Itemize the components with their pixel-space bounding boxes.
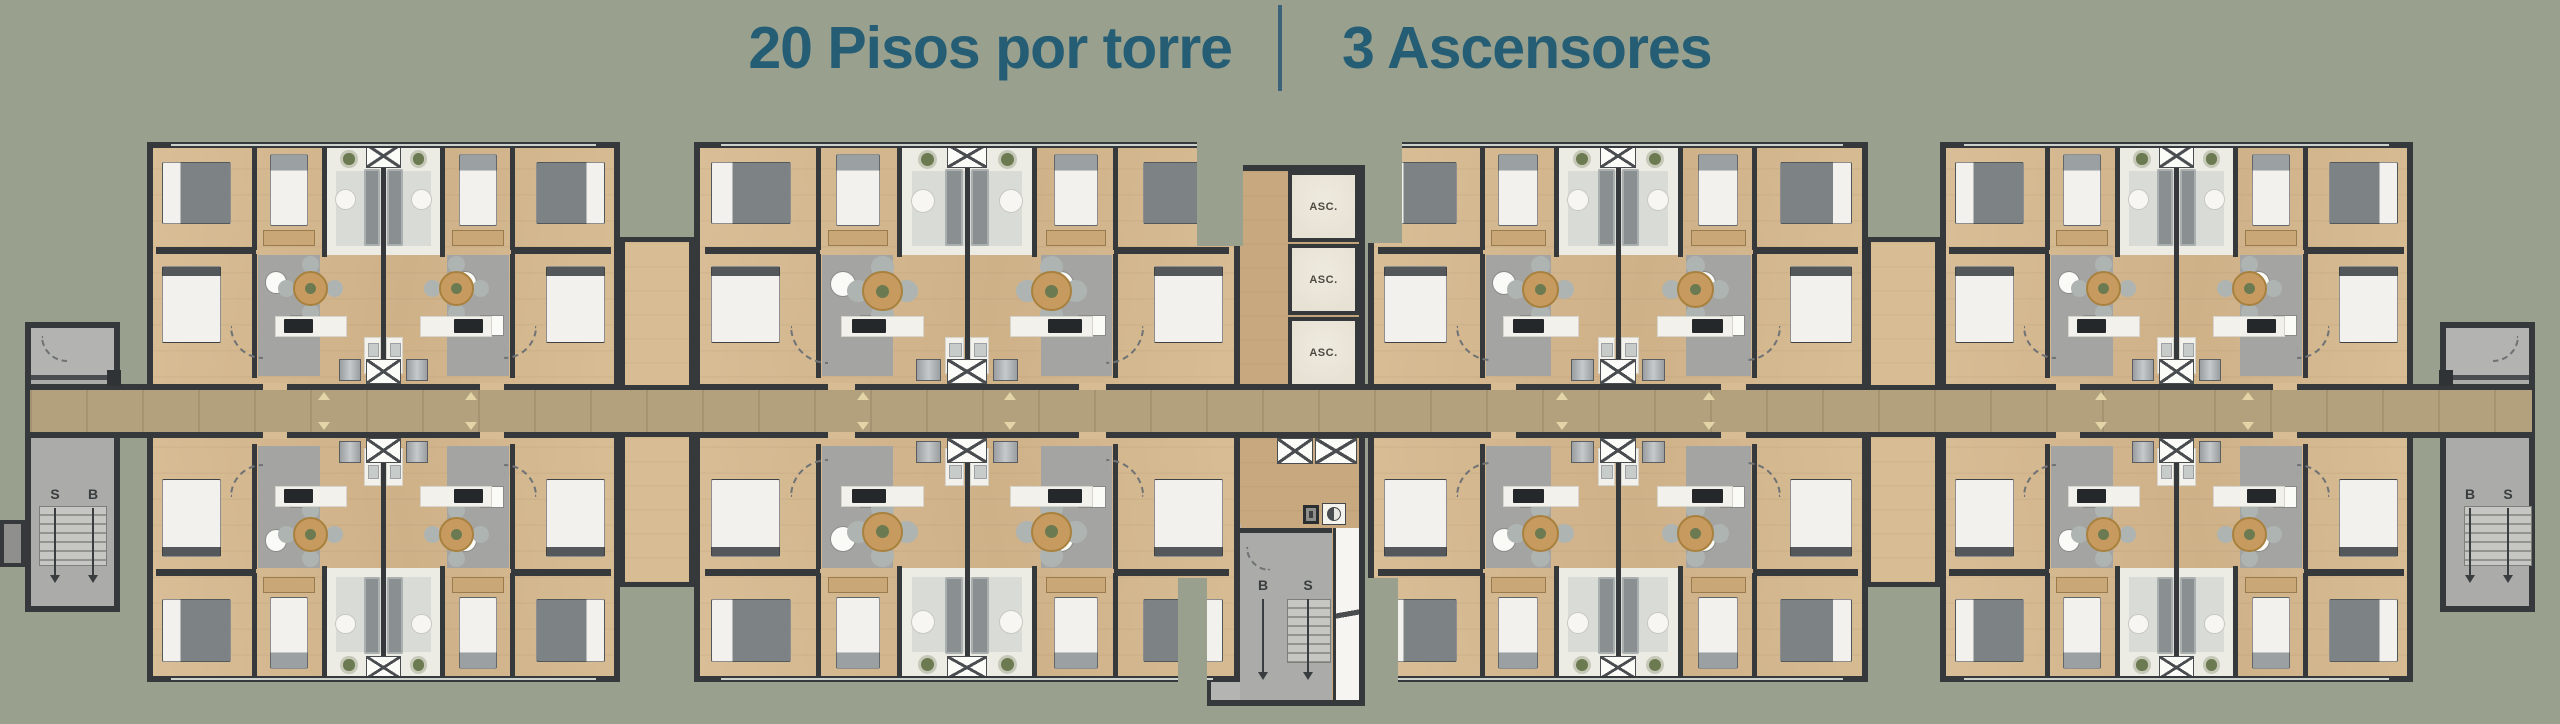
- dining-table: [2086, 517, 2121, 552]
- interior-wall: [1480, 148, 1485, 250]
- door-swing: [1106, 326, 1144, 364]
- door-swing: [2023, 464, 2056, 497]
- down-arrow-icon: [1262, 599, 1264, 673]
- elevator-label: ASC.: [1309, 274, 1337, 286]
- toilet: [1493, 529, 1515, 551]
- corridor-marker-icon: [2242, 392, 2254, 400]
- window-strip: [1393, 144, 1843, 146]
- interior-wall: [1113, 574, 1118, 677]
- plant: [343, 659, 354, 670]
- washer: [1642, 359, 1665, 381]
- plant: [2206, 659, 2217, 670]
- down-arrow-icon: [2469, 508, 2471, 576]
- bed: [711, 162, 790, 224]
- facade-notch: [1197, 136, 1243, 246]
- bed: [536, 600, 605, 663]
- kitchen-counter: [1657, 316, 1733, 337]
- bed: [2339, 480, 2398, 558]
- dining-table: [1677, 515, 1714, 552]
- door-swing: [1456, 462, 1491, 497]
- electrical-box: [1303, 505, 1319, 524]
- cooktop: [2247, 319, 2276, 333]
- kitchen-counter: [275, 486, 347, 507]
- dining-table: [862, 512, 902, 552]
- wardrobe: [1691, 577, 1746, 593]
- bed: [2063, 597, 2101, 670]
- elevator-cell: ASC.: [1288, 317, 1359, 388]
- door-swing: [1106, 459, 1144, 497]
- shaft-box: [947, 438, 986, 463]
- corridor-marker-icon: [465, 392, 477, 400]
- corridor-marker-icon: [1004, 392, 1016, 400]
- bed: [1955, 480, 2014, 558]
- corridor-marker-icon: [1556, 422, 1568, 430]
- interior-wall: [2115, 148, 2120, 257]
- coffee-table: [411, 189, 432, 210]
- cooktop: [454, 319, 483, 333]
- apartment-cluster: [1368, 142, 1868, 390]
- plant: [1576, 659, 1588, 671]
- bed: [1054, 597, 1098, 670]
- sofa: [1622, 577, 1639, 655]
- interior-wall: [2045, 574, 2050, 677]
- bed: [1154, 266, 1222, 343]
- bed: [1498, 597, 1538, 670]
- wardrobe: [828, 577, 888, 593]
- corridor-marker-icon: [2242, 422, 2254, 430]
- door-swing: [230, 464, 263, 497]
- entry-door-gap: [2056, 383, 2080, 390]
- corridor-marker-icon: [857, 422, 869, 430]
- cooktop: [454, 489, 483, 503]
- party-wall: [965, 148, 970, 384]
- shaft-box: [1600, 656, 1636, 680]
- interior-wall: [1114, 569, 1229, 576]
- plant: [2206, 153, 2217, 164]
- washer: [916, 441, 941, 464]
- wardrobe: [2056, 230, 2108, 246]
- interior-wall: [1554, 148, 1559, 257]
- interior-wall: [511, 247, 610, 253]
- plant: [921, 658, 934, 671]
- wardrobe: [1046, 577, 1106, 593]
- washer: [916, 359, 941, 381]
- washer: [2132, 359, 2154, 381]
- stair-steps: [39, 506, 107, 566]
- entry-door-gap: [263, 432, 287, 439]
- dining-table: [2086, 271, 2121, 306]
- corridor-marker-icon: [2095, 392, 2107, 400]
- bed: [162, 266, 221, 343]
- elevator-label: ASC.: [1309, 201, 1337, 213]
- bed: [270, 154, 308, 226]
- interior-wall: [252, 148, 257, 250]
- interior-wall: [511, 569, 610, 576]
- plant: [343, 153, 354, 164]
- floor-plan: S B B S ASC. ASC.: [0, 0, 2560, 724]
- sofa: [971, 169, 990, 246]
- stairwell-center: B S: [1240, 528, 1332, 700]
- bed: [1384, 266, 1447, 343]
- dining-table: [1522, 515, 1559, 552]
- interior-wall: [440, 148, 445, 257]
- window-strip: [1964, 678, 2390, 680]
- cooktop: [1048, 319, 1082, 333]
- washer: [993, 441, 1018, 464]
- corridor-marker-icon: [465, 422, 477, 430]
- shaft-box: [1315, 438, 1357, 464]
- interior-wall: [510, 445, 515, 570]
- wardrobe: [1491, 577, 1546, 593]
- toilet: [831, 272, 855, 296]
- window-strip: [171, 678, 597, 680]
- elevator-label: ASC.: [1309, 347, 1337, 359]
- corridor-marker-icon: [318, 392, 330, 400]
- interior-wall: [2233, 148, 2238, 257]
- apartment-cluster: [694, 432, 1240, 682]
- interior-wall: [1678, 148, 1683, 257]
- door-swing: [2297, 326, 2330, 359]
- stair-label-b: B: [1253, 577, 1273, 593]
- stairwell-right: B S: [2440, 322, 2535, 612]
- bed: [162, 600, 231, 663]
- bed: [459, 597, 497, 670]
- down-arrow-icon: [92, 508, 94, 576]
- interior-wall: [2303, 254, 2308, 378]
- kitchen-counter: [2213, 316, 2285, 337]
- washer: [1571, 441, 1594, 464]
- interior-wall: [897, 148, 902, 257]
- bed: [2339, 266, 2398, 343]
- interior-wall: [1378, 569, 1483, 576]
- bed: [2329, 162, 2398, 224]
- window-strip: [1393, 678, 1843, 680]
- kitchen-counter: [841, 316, 924, 337]
- kitchen-counter: [2213, 486, 2285, 507]
- plant: [1001, 658, 1014, 671]
- apartment-cluster: [1940, 432, 2413, 682]
- kitchen-counter: [1010, 316, 1093, 337]
- dining-table: [862, 271, 902, 311]
- dining-table: [1522, 271, 1559, 308]
- party-wall: [1616, 439, 1621, 677]
- stair-steps: [2464, 506, 2532, 566]
- bed: [1698, 597, 1738, 670]
- down-arrow-icon: [2507, 508, 2509, 576]
- interior-wall: [2045, 148, 2050, 250]
- apartment-cluster: [147, 432, 620, 682]
- bed: [270, 597, 308, 670]
- cooktop: [1513, 319, 1544, 333]
- interior-wall: [322, 148, 327, 257]
- corridor-marker-icon: [2095, 422, 2107, 430]
- cooktop: [852, 319, 886, 333]
- kitchen-counter: [2068, 316, 2140, 337]
- shaft-box: [2159, 656, 2193, 680]
- door-swing: [504, 464, 537, 497]
- interior-wall: [440, 566, 445, 676]
- bed: [711, 480, 779, 558]
- interior-wall: [252, 254, 257, 378]
- interior-wall: [510, 574, 515, 677]
- coffee-table: [999, 189, 1023, 213]
- interior-wall: [2115, 566, 2120, 676]
- title-divider: [1278, 5, 1282, 91]
- shaft-box: [1600, 359, 1636, 384]
- interior-wall: [2045, 254, 2050, 378]
- bed: [2063, 154, 2101, 226]
- coffee-table: [411, 614, 432, 635]
- washer: [406, 441, 428, 464]
- washer: [993, 359, 1018, 381]
- entry-door-gap: [480, 383, 504, 390]
- sofa: [387, 169, 403, 246]
- coffee-table: [2204, 189, 2225, 210]
- interior-wall: [252, 445, 257, 570]
- interior-wall: [510, 148, 515, 250]
- window-strip: [1964, 144, 2390, 146]
- shaft-box: [366, 144, 400, 168]
- interior-wall: [1032, 566, 1037, 676]
- bed: [711, 266, 779, 343]
- entry-door-gap: [2056, 432, 2080, 439]
- interior-wall: [897, 566, 902, 676]
- facade-notch: [1178, 578, 1207, 724]
- bed: [1698, 154, 1738, 226]
- dining-table: [293, 517, 328, 552]
- plant: [1576, 153, 1588, 165]
- floorplan-infographic: 20 Pisos por torre 3 Ascensores S B B S: [0, 0, 2560, 724]
- down-arrow-icon: [54, 508, 56, 576]
- interior-wall: [2045, 445, 2050, 570]
- bed: [1955, 266, 2014, 343]
- door-swing: [2297, 464, 2330, 497]
- apartment-cluster: [147, 142, 620, 390]
- toilet: [266, 272, 287, 293]
- kitchen-counter: [1503, 316, 1579, 337]
- wardrobe: [2245, 577, 2297, 593]
- door-swing: [1456, 326, 1491, 361]
- kitchen-counter: [275, 316, 347, 337]
- interior-wall: [1753, 569, 1858, 576]
- corridor-marker-icon: [1703, 392, 1715, 400]
- sofa: [387, 577, 403, 655]
- sofa: [2180, 169, 2196, 246]
- bed: [1790, 480, 1853, 558]
- interior-wall: [1949, 569, 2048, 576]
- washer: [2199, 359, 2221, 381]
- wardrobe: [1046, 230, 1106, 246]
- shaft-box: [947, 656, 986, 680]
- wardrobe: [1491, 230, 1546, 246]
- bed: [1384, 480, 1447, 558]
- shaft-box: [2159, 359, 2193, 384]
- window-strip: [721, 678, 1212, 680]
- elevator-cell: ASC.: [1288, 244, 1359, 315]
- sofa: [364, 169, 380, 246]
- door-swing: [2023, 326, 2056, 359]
- cooktop: [2247, 489, 2276, 503]
- wardrobe: [828, 230, 888, 246]
- party-wall: [1616, 148, 1621, 384]
- kitchen-counter: [420, 316, 492, 337]
- stair-steps: [1287, 599, 1331, 663]
- sofa: [1622, 169, 1639, 246]
- entry-door-gap: [1079, 432, 1106, 439]
- elevator-cell: ASC.: [1288, 171, 1359, 242]
- stair-label-b: B: [83, 486, 103, 502]
- dining-table: [1031, 271, 1071, 311]
- down-arrow-icon: [1307, 599, 1309, 673]
- coffee-table: [1647, 189, 1669, 211]
- entry-hall: [620, 237, 694, 390]
- header: 20 Pisos por torre 3 Ascensores: [0, 2, 2560, 94]
- interior-wall: [1114, 247, 1229, 253]
- kitchen-counter: [1657, 486, 1733, 507]
- coffee-table: [1567, 189, 1589, 211]
- bed: [836, 154, 880, 226]
- shaft-box: [1600, 438, 1636, 463]
- entry-door-gap: [2273, 383, 2297, 390]
- stair-label-b: B: [2460, 486, 2480, 502]
- interior-wall: [2303, 148, 2308, 250]
- dining-table: [1031, 512, 1071, 552]
- plant: [413, 659, 424, 670]
- cooktop: [1692, 319, 1723, 333]
- bed: [546, 480, 605, 558]
- party-wall: [381, 439, 386, 677]
- cooktop: [2077, 319, 2106, 333]
- shaft-box: [366, 438, 400, 463]
- sofa: [971, 577, 990, 655]
- bed: [1780, 600, 1853, 663]
- entry-door-gap: [2273, 432, 2297, 439]
- bed: [836, 597, 880, 670]
- bed: [459, 154, 497, 226]
- party-wall: [2174, 148, 2179, 384]
- kitchen-counter: [2068, 486, 2140, 507]
- wardrobe: [2245, 230, 2297, 246]
- bed: [162, 480, 221, 558]
- washer: [339, 359, 361, 381]
- interior-wall: [510, 254, 515, 378]
- party-wall: [381, 148, 386, 384]
- entry-door-gap: [1721, 383, 1746, 390]
- interior-wall: [252, 574, 257, 677]
- entry-door-gap: [828, 383, 855, 390]
- door-swing: [1246, 547, 1270, 571]
- entry-door-gap: [1491, 432, 1516, 439]
- corridor-marker-icon: [1703, 422, 1715, 430]
- entry-hall: [1866, 432, 1940, 587]
- toilet: [2059, 272, 2080, 293]
- sofa: [2157, 577, 2173, 655]
- interior-wall: [1554, 566, 1559, 676]
- wardrobe: [452, 230, 504, 246]
- washer: [2199, 441, 2221, 464]
- interior-wall: [1752, 574, 1757, 677]
- shaft-box: [366, 656, 400, 680]
- corridor-marker-icon: [1556, 392, 1568, 400]
- corridor-marker-icon: [857, 392, 869, 400]
- door-swing: [790, 459, 828, 497]
- cooktop: [1692, 489, 1723, 503]
- apartment-cluster: [1940, 142, 2413, 390]
- shaft-box: [2159, 144, 2193, 168]
- interior-wall: [1753, 247, 1858, 253]
- interior-wall: [705, 569, 820, 576]
- kitchen-counter: [1503, 486, 1579, 507]
- entry-door-gap: [1079, 383, 1106, 390]
- bed: [1955, 600, 2024, 663]
- washer: [406, 359, 428, 381]
- utility-box: [2439, 370, 2453, 386]
- shaft-box: [1277, 438, 1313, 464]
- bed: [162, 162, 231, 224]
- toilet: [1493, 272, 1515, 294]
- bed: [1780, 162, 1853, 224]
- service-niche: [0, 520, 25, 567]
- interior-wall: [2304, 569, 2403, 576]
- interior-wall: [705, 247, 820, 253]
- bed: [1154, 480, 1222, 558]
- shaft-box: [366, 359, 400, 384]
- entry-hall: [1866, 237, 1940, 390]
- toilet: [2059, 530, 2080, 551]
- utility-box: [107, 370, 121, 386]
- coffee-table: [335, 189, 356, 210]
- interior-wall: [1113, 148, 1118, 250]
- sofa: [1598, 169, 1615, 246]
- stair-label-s: S: [1298, 577, 1318, 593]
- dining-table: [1677, 271, 1714, 308]
- washer: [1642, 441, 1665, 464]
- coffee-table: [2128, 189, 2149, 210]
- sofa: [945, 577, 964, 655]
- bed: [546, 266, 605, 343]
- elevator-core: ASC. ASC. ASC.: [1233, 165, 1365, 390]
- door-swing: [1746, 326, 1781, 361]
- washer: [339, 441, 361, 464]
- corridor-marker-icon: [1004, 422, 1016, 430]
- door-swing: [230, 326, 263, 359]
- facade-notch: [1365, 136, 1402, 243]
- cooktop: [284, 319, 313, 333]
- washer: [2132, 441, 2154, 464]
- cooktop: [2077, 489, 2106, 503]
- cooktop: [1048, 489, 1082, 503]
- interior-wall: [816, 574, 821, 677]
- interior-wall: [2233, 566, 2238, 676]
- interior-wall: [2303, 574, 2308, 677]
- shaft-box: [947, 359, 986, 384]
- apartment-cluster: [694, 142, 1240, 390]
- interior-wall: [1752, 148, 1757, 250]
- shaft-box: [2159, 438, 2193, 463]
- interior-wall: [816, 148, 821, 250]
- plant: [413, 153, 424, 164]
- bed: [2329, 600, 2398, 663]
- entry-door-gap: [828, 432, 855, 439]
- facade-notch: [1365, 578, 1398, 685]
- kitchen-counter: [841, 486, 924, 507]
- sofa: [2180, 577, 2196, 655]
- stairwell-left: S B: [25, 322, 120, 612]
- door-swing: [1746, 462, 1781, 497]
- interior-wall: [1378, 247, 1483, 253]
- window-strip: [171, 144, 597, 146]
- kitchen-counter: [1010, 486, 1093, 507]
